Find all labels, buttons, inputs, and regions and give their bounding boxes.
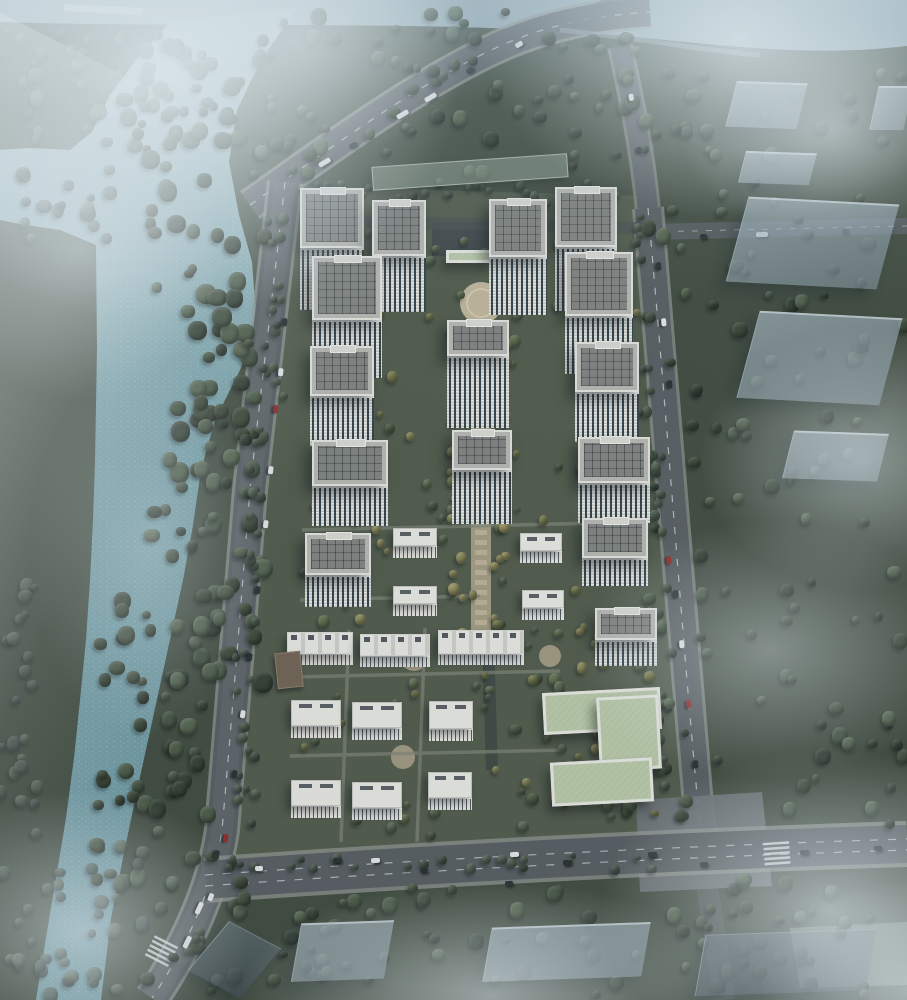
sports-field xyxy=(790,922,907,988)
terrain xyxy=(0,0,907,1000)
garden-plaza-2 xyxy=(391,745,415,769)
internal-top-drive xyxy=(300,220,640,228)
aerial-rendering xyxy=(0,0,907,1000)
garden-plaza-3 xyxy=(539,645,561,667)
